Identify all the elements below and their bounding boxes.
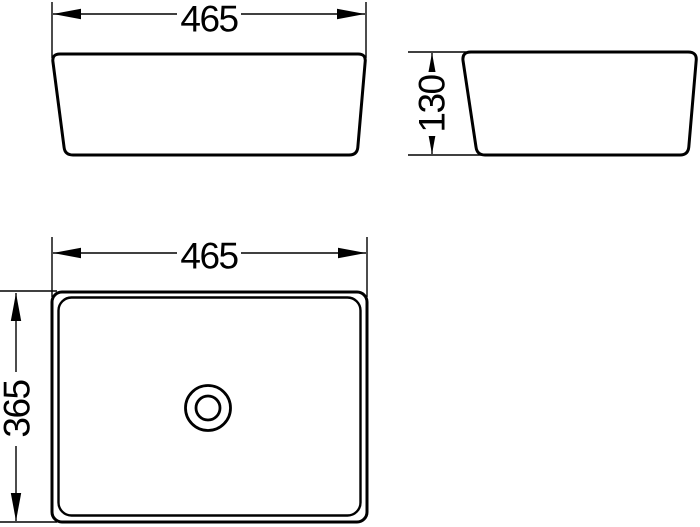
front-view-basin-outline [53, 54, 365, 155]
front-width-dimension-label: 465 [180, 0, 238, 40]
technical-drawing-canvas: 465 130 465 365 [0, 0, 700, 527]
side-height-dimension-label: 130 [412, 74, 453, 132]
top-view-basin-outer-rim-outline [52, 292, 367, 522]
side-view: 130 [408, 52, 696, 155]
drain-hole-inner-circle [196, 396, 220, 420]
top-depth-dimension-label: 365 [0, 379, 38, 437]
side-view-basin-outline [463, 52, 696, 155]
top-view-basin-inner-rim-outline [59, 298, 361, 516]
top-view: 465 365 [0, 236, 367, 523]
top-width-dimension-label: 465 [180, 236, 238, 277]
drain-hole-outer-circle [186, 386, 231, 431]
basin-dimension-drawing: 465 130 465 365 [0, 0, 700, 527]
front-view: 465 [52, 0, 366, 155]
